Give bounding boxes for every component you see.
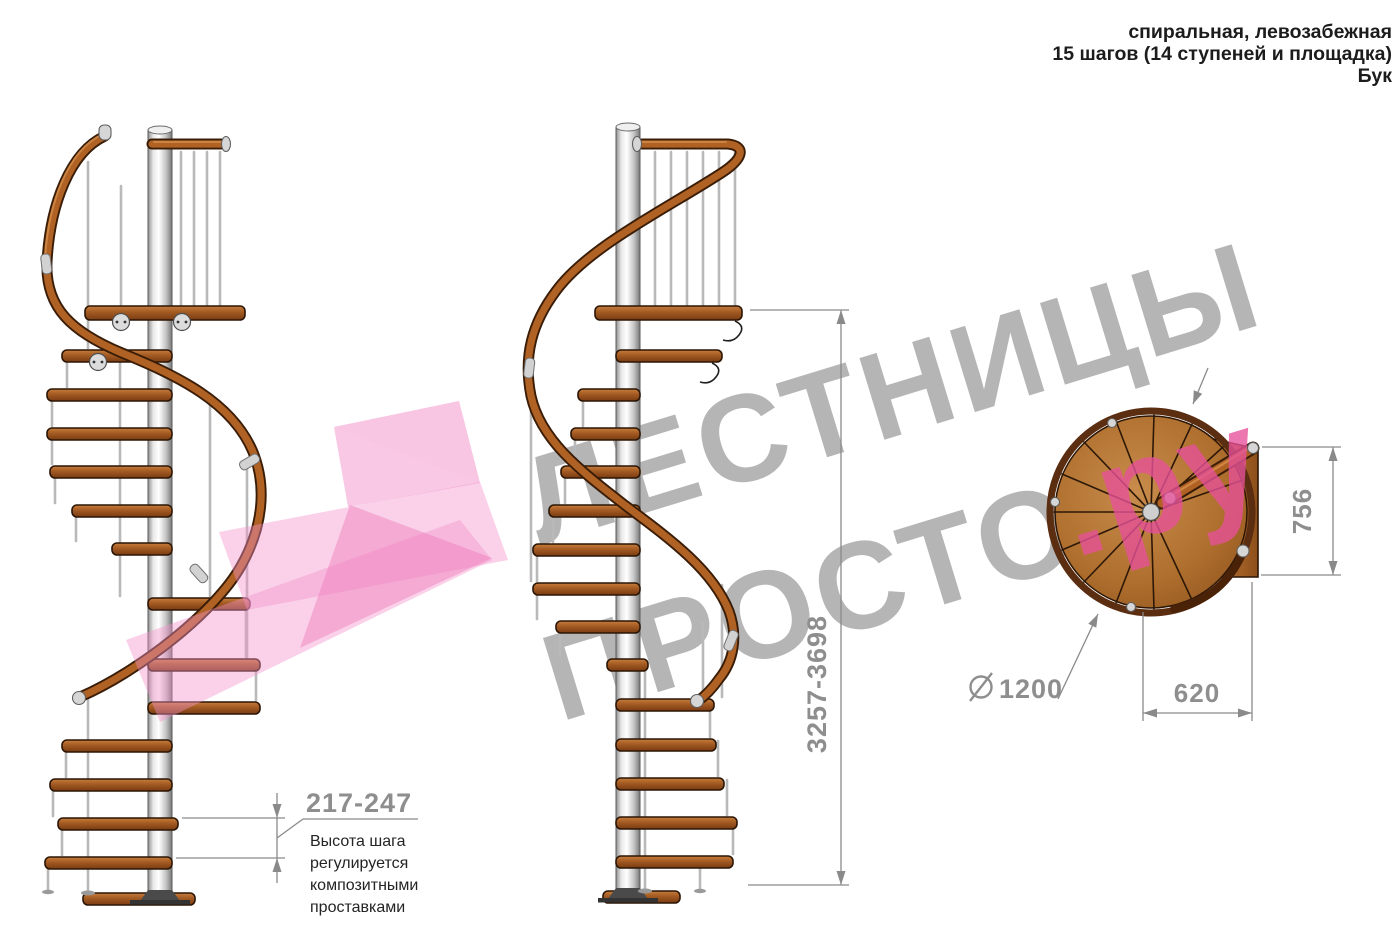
right-rail-end-cap: [691, 695, 704, 708]
left-pole-base: [140, 890, 180, 901]
staircase-drawing-svg: ЛЕСТНИЦЫ ПРОСТО: [0, 0, 1400, 948]
diameter-value: 1200: [999, 674, 1063, 704]
technical-drawing-page: ЛЕСТНИЦЫ ПРОСТО: [0, 0, 1400, 948]
plan-depth-value: 756: [1287, 488, 1317, 534]
diameter-icon: [970, 673, 992, 701]
step-height-note: Высота шага регулируется композитными пр…: [310, 833, 423, 916]
right-landing-tread: [595, 306, 742, 320]
right-landing-hook-bracket: [723, 321, 742, 341]
title-block: спиральная, левозабежная 15 шагов (14 ст…: [1052, 21, 1392, 87]
left-landing-tread: [85, 306, 245, 320]
title-line-material: Бук: [1358, 65, 1393, 87]
left-rail-end-cap: [73, 692, 86, 705]
left-staircase-side-view: [40, 125, 261, 905]
left-top-rail: [152, 137, 231, 152]
dimension-diameter-1200: 1200: [970, 614, 1098, 704]
step-height-value: 217-247: [306, 788, 412, 818]
watermark-logo-arrow: [126, 401, 508, 722]
title-line-type: спиральная, левозабежная: [1128, 21, 1392, 43]
left-connector-plate: [113, 314, 130, 331]
right-rail-top-cap: [633, 137, 642, 152]
left-rail-top-cap: [99, 125, 111, 140]
title-line-steps: 15 шагов (14 ступеней и площадка): [1052, 43, 1392, 65]
plan-width-value: 620: [1174, 678, 1220, 708]
dimension-step-height: 217-247 Высота шага регулируется компози…: [176, 788, 423, 916]
total-height-value: 3257-3698: [802, 615, 832, 753]
